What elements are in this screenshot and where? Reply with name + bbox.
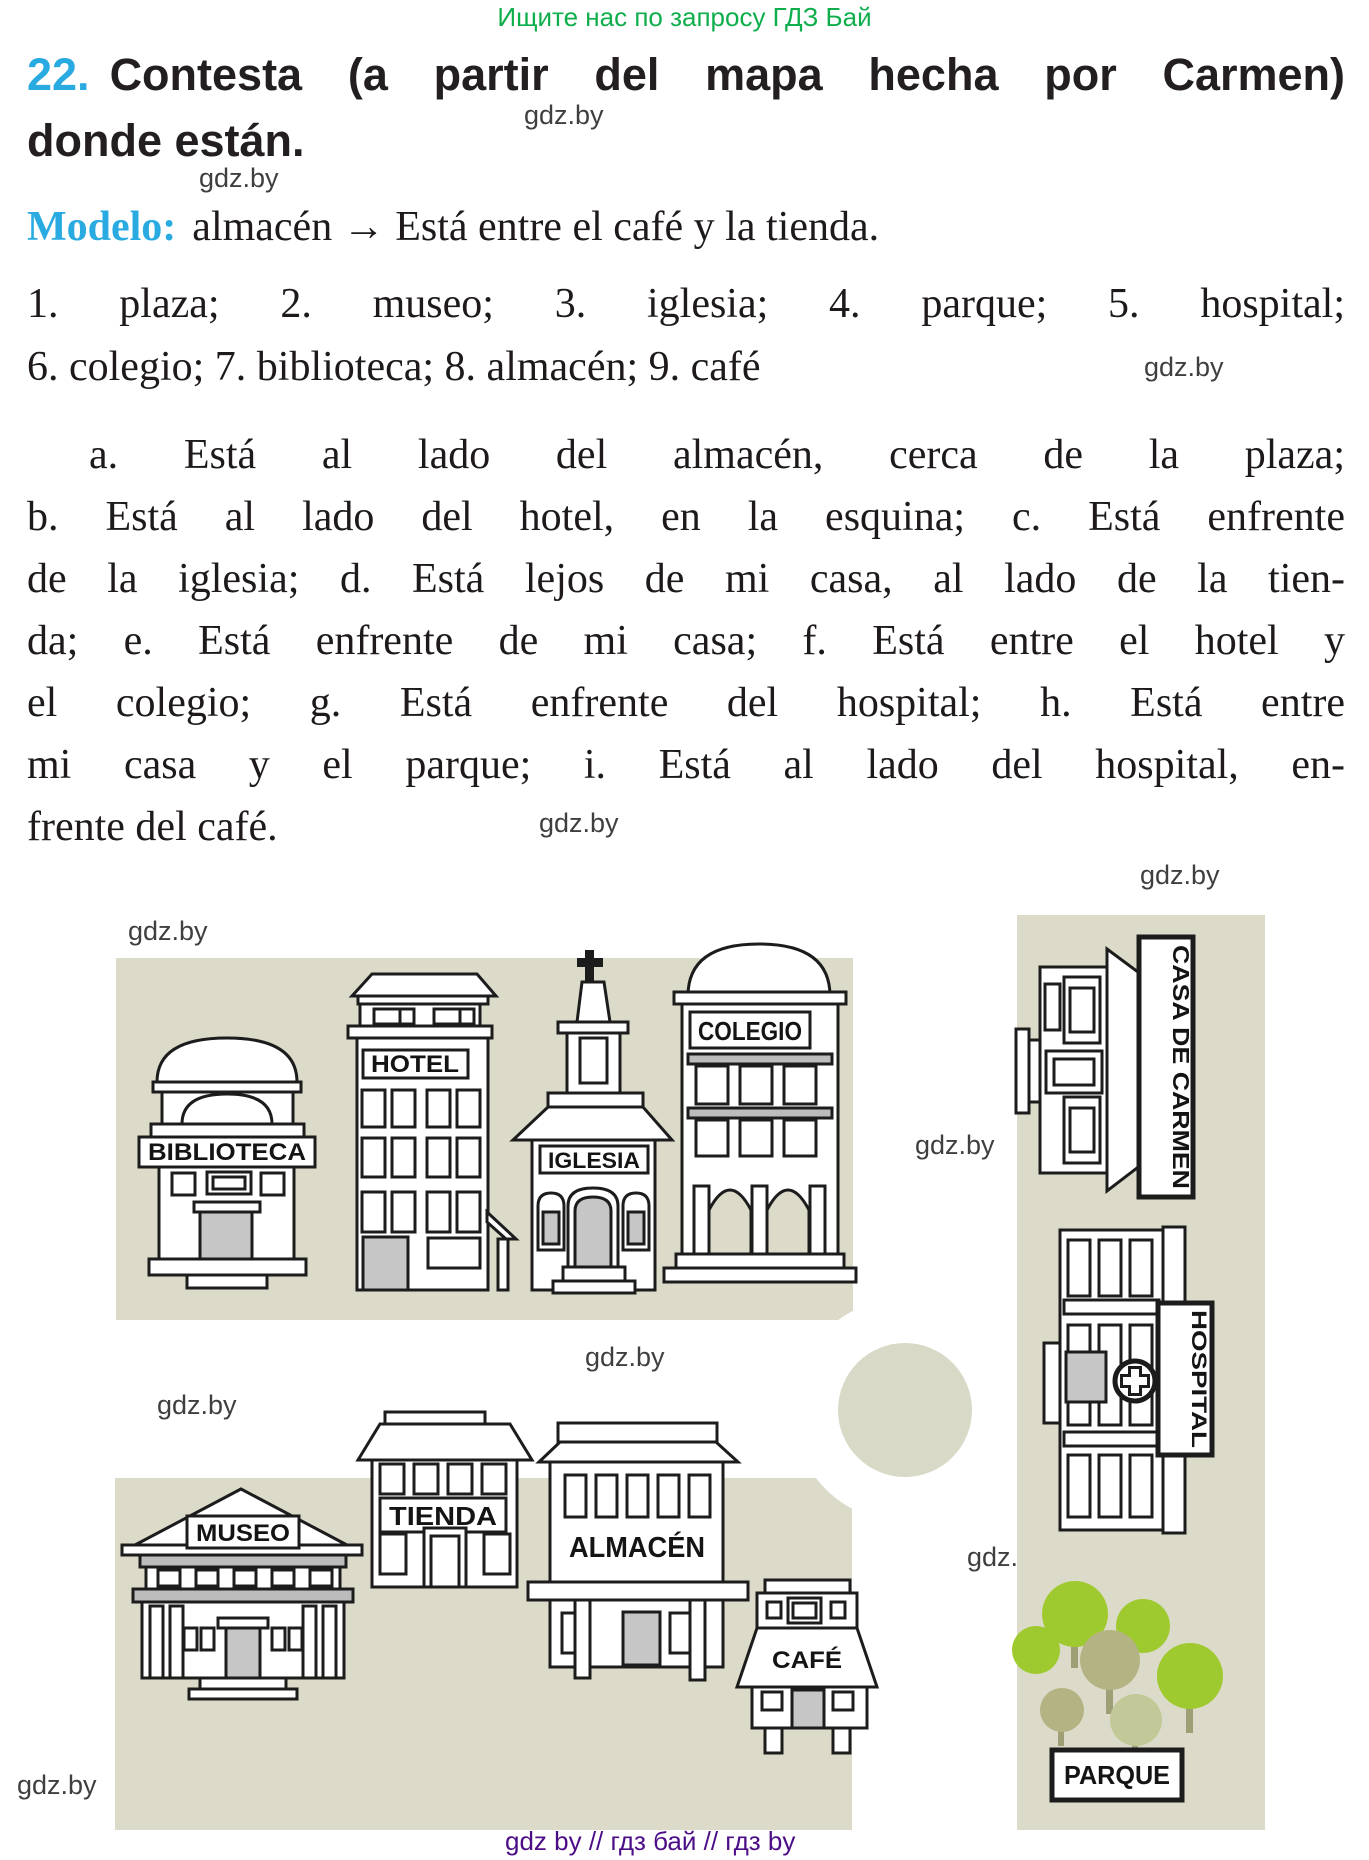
hotel-side-post [498,1239,508,1290]
almacen-sign: ALMACÉN [569,1530,705,1564]
model-text: almacén → Está entre el café y la tienda… [192,204,879,250]
hotel-sign: HOTEL [371,1051,459,1078]
watermark: gdz.by [199,163,279,194]
watermark: gdz.by [524,100,604,131]
parque-sign: PARQUE [1064,1760,1170,1790]
exercise-title-text: Contesta (a partir del mapa hecha por Ca… [110,49,1345,100]
model-label: Modelo: [27,204,176,250]
exercise-number: 22. [27,49,90,100]
biblioteca-sign: BIBLIOTECA [148,1139,306,1166]
medical-cross-icon [1123,1377,1147,1385]
answer-line: da; e. Está enfrente de mi casa; f. Está… [27,610,1345,672]
answer-line: a. Está al lado del almacén, cerca de la… [27,424,1345,486]
town-map: BIBLIOTECA HOTEL [90,905,1280,1840]
building-tienda: TIENDA [358,1412,532,1587]
watermark: gdz.by [539,808,619,839]
watermark: gdz.by [1144,352,1224,383]
items-line1: 1. plaza; 2. museo; 3. iglesia; 4. parqu… [27,276,1345,332]
iglesia-cross-icon [577,958,603,967]
answer-line: el colegio; g. Está enfrente del hospita… [27,672,1345,734]
watermark: gdz.by [17,1770,97,1801]
exercise-title-line1: 22.Contesta (a partir del mapa hecha por… [27,46,1345,104]
iglesia-sign: IGLESIA [548,1148,640,1173]
roundabout-plaza [838,1343,972,1477]
parque-sign-group: PARQUE [1052,1750,1182,1800]
building-almacen: ALMACÉN [528,1423,748,1680]
answer-line: frente del café. [27,796,1345,858]
answers-block: a. Está al lado del almacén, cerca de la… [27,424,1345,858]
hospital-sign: HOSPITAL [1187,1310,1210,1448]
model-line: Modelo:almacén → Está entre el café y la… [27,199,1345,255]
casa-de-carmen-sign: CASA DE CARMEN [1168,945,1194,1189]
building-cafe: CAFÉ [737,1580,877,1753]
watermark: gdz.by [1140,860,1220,891]
building-biblioteca: BIBLIOTECA [139,1038,315,1288]
footer-watermark: gdz by // гдз бай // гдз by [505,1826,795,1857]
answer-line: de la iglesia; d. Está lejos de mi casa,… [27,548,1345,610]
building-colegio: COLEGIO [664,944,856,1282]
answer-line: b. Está al lado del hotel, en la esquina… [27,486,1345,548]
museo-sign: MUSEO [196,1520,290,1547]
exercise-title-line2: donde están. [27,112,1345,170]
cafe-sign: CAFÉ [772,1646,842,1674]
promo-header: Ищите нас по запросу ГДЗ Бай [0,2,1369,33]
building-casa-de-carmen: CASA DE CARMEN [1016,937,1194,1197]
colegio-sign: COLEGIO [698,1016,802,1046]
textbook-page: Ищите нас по запросу ГДЗ Бай 22.Contesta… [0,0,1369,1860]
answer-line: mi casa y el parque; i. Está al lado del… [27,734,1345,796]
